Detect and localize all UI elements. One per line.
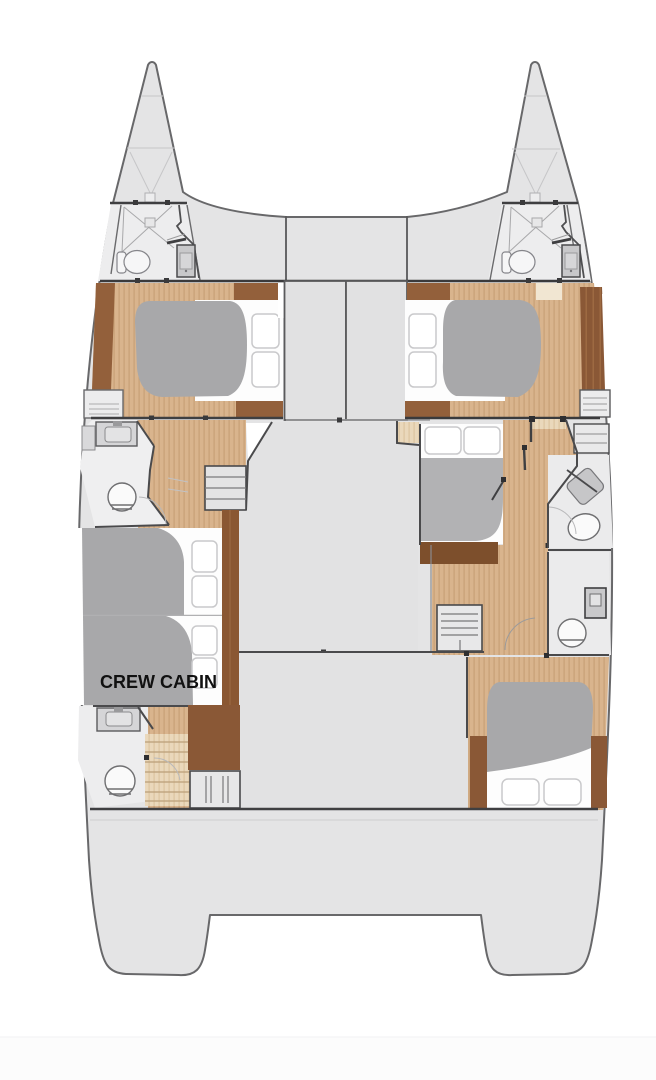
svg-text:CREW CABIN: CREW CABIN (100, 672, 217, 692)
